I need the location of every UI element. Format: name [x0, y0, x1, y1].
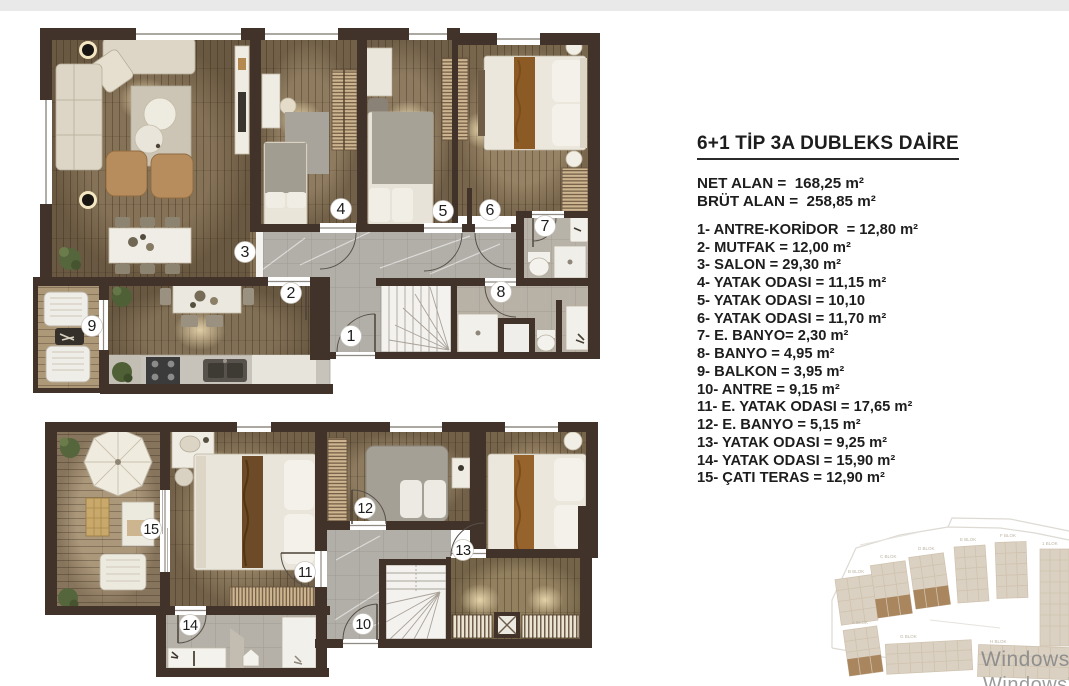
- svg-text:10: 10: [355, 617, 371, 633]
- svg-text:8: 8: [497, 284, 506, 301]
- svg-text:2: 2: [287, 285, 296, 302]
- svg-text:7: 7: [541, 218, 550, 235]
- svg-text:D BLOK: D BLOK: [918, 546, 935, 551]
- svg-text:4: 4: [337, 201, 346, 218]
- svg-text:1: 1: [347, 328, 356, 345]
- svg-text:B BLOK: B BLOK: [848, 569, 864, 574]
- svg-text:14: 14: [182, 618, 198, 634]
- svg-text:C BLOK: C BLOK: [880, 554, 897, 559]
- svg-text:3: 3: [241, 244, 250, 261]
- svg-text:E BLOK: E BLOK: [960, 537, 976, 542]
- svg-text:A BLOK: A BLOK: [852, 620, 868, 625]
- svg-text:15: 15: [143, 522, 159, 538]
- svg-text:9: 9: [88, 318, 97, 335]
- svg-text:13: 13: [455, 543, 471, 559]
- svg-text:F BLOK: F BLOK: [1000, 533, 1016, 538]
- svg-text:5: 5: [439, 203, 448, 220]
- svg-text:12: 12: [357, 501, 373, 517]
- svg-text:H BLOK: H BLOK: [990, 639, 1007, 644]
- svg-text:6: 6: [486, 202, 495, 219]
- svg-text:G BLOK: G BLOK: [900, 634, 917, 639]
- svg-text:1 BLOK: 1 BLOK: [1042, 541, 1058, 546]
- svg-text:11: 11: [298, 565, 312, 581]
